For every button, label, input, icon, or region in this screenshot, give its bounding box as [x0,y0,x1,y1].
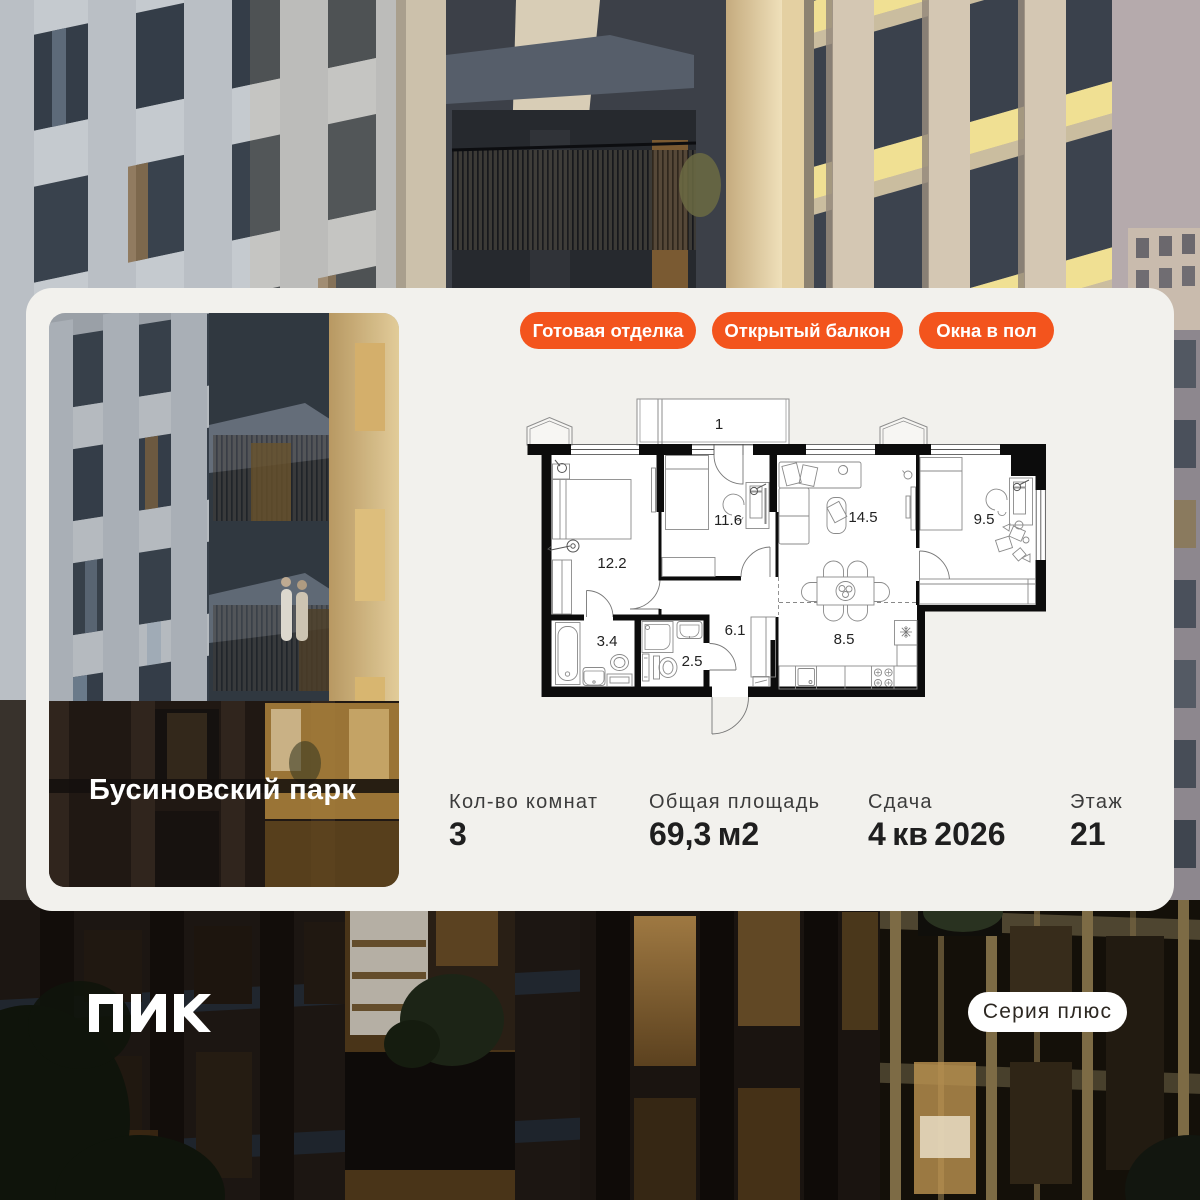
svg-text:6.1: 6.1 [725,622,746,639]
svg-text:9.5: 9.5 [974,511,995,528]
svg-text:8.5: 8.5 [834,631,855,648]
svg-text:2.5: 2.5 [682,653,703,670]
svg-text:1: 1 [715,416,723,433]
svg-text:11.6: 11.6 [714,512,742,529]
svg-text:14.5: 14.5 [848,509,877,526]
svg-text:3.4: 3.4 [597,633,618,650]
svg-text:12.2: 12.2 [597,555,626,572]
